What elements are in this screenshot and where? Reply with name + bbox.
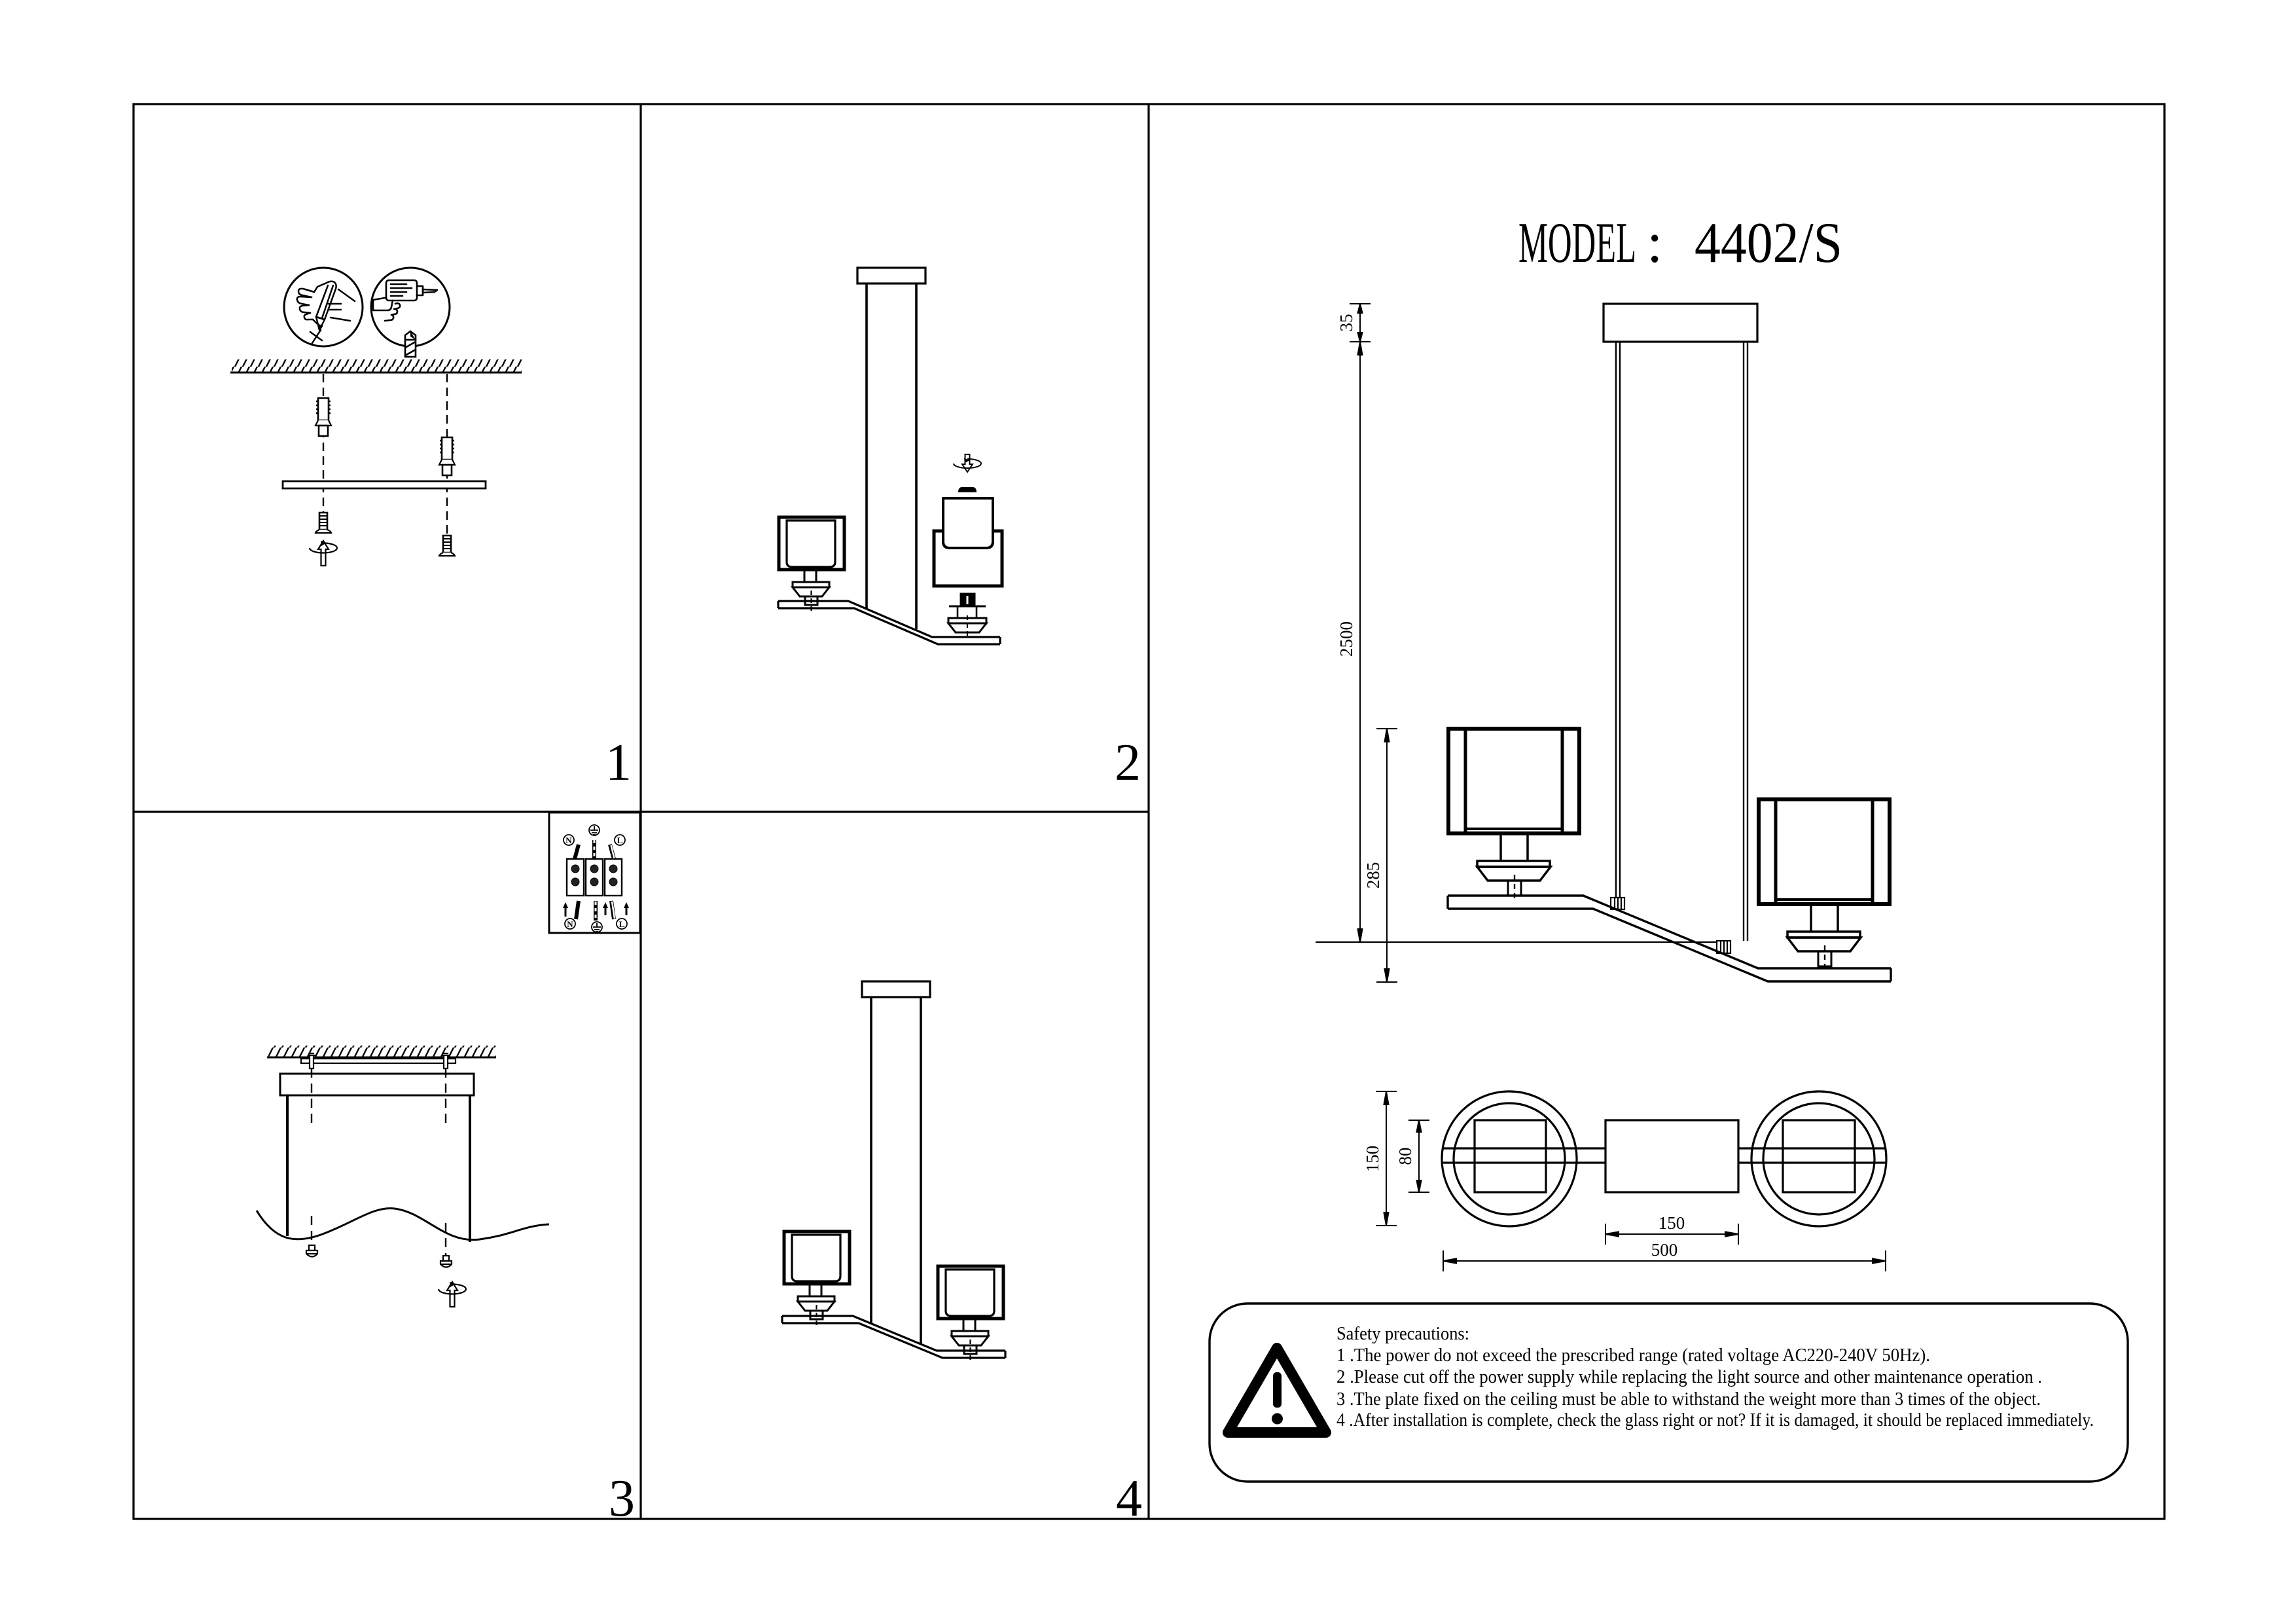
svg-text:500: 500: [1651, 1240, 1678, 1260]
svg-text::: :: [1647, 211, 1662, 275]
svg-text:285: 285: [1363, 862, 1383, 889]
svg-text:MODEL: MODEL: [1518, 211, 1636, 275]
svg-text:1 .The power do not exceed the: 1 .The power do not exceed the prescribe…: [1336, 1345, 1930, 1366]
svg-text:4: 4: [1116, 1470, 1142, 1527]
svg-text:L: L: [619, 919, 625, 929]
svg-text:3 .The plate fixed on the ceil: 3 .The plate fixed on the ceiling must b…: [1336, 1389, 2041, 1410]
svg-text:80: 80: [1395, 1148, 1415, 1165]
svg-text:2 .Please cut off the power su: 2 .Please cut off the power supply while…: [1336, 1366, 2042, 1387]
svg-text:4402/S: 4402/S: [1695, 211, 1842, 275]
svg-text:4 .After installation is compl: 4 .After installation is complete, check…: [1336, 1410, 2094, 1431]
svg-text:L: L: [617, 835, 623, 845]
svg-text:2: 2: [1115, 734, 1141, 792]
svg-text:N: N: [567, 919, 573, 929]
svg-text:35: 35: [1336, 314, 1356, 332]
svg-text:2500: 2500: [1336, 621, 1356, 657]
svg-text:150: 150: [1363, 1146, 1382, 1173]
svg-text:Safety precautions:: Safety precautions:: [1336, 1323, 1469, 1344]
svg-text:N: N: [565, 835, 572, 845]
svg-text:150: 150: [1659, 1213, 1685, 1233]
svg-text:3: 3: [609, 1470, 635, 1527]
svg-text:1: 1: [605, 734, 632, 792]
